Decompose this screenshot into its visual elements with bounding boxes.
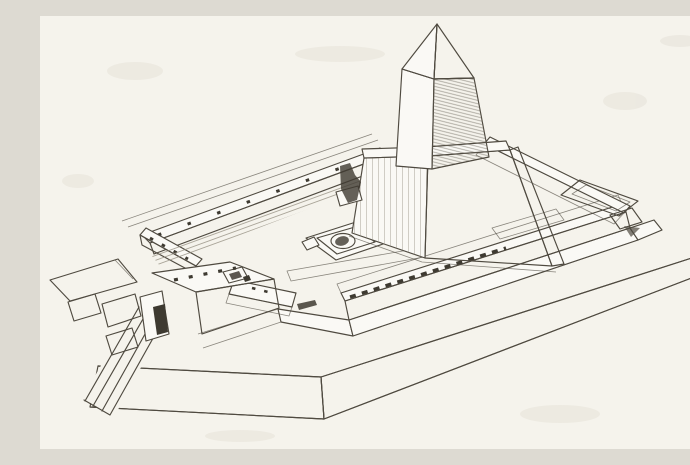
- obelisk-shaft-left-face: [396, 69, 434, 169]
- engraving-canvas: [40, 16, 690, 449]
- sun-temple-engraving: Obelisk with pyramidion tip: [40, 16, 690, 449]
